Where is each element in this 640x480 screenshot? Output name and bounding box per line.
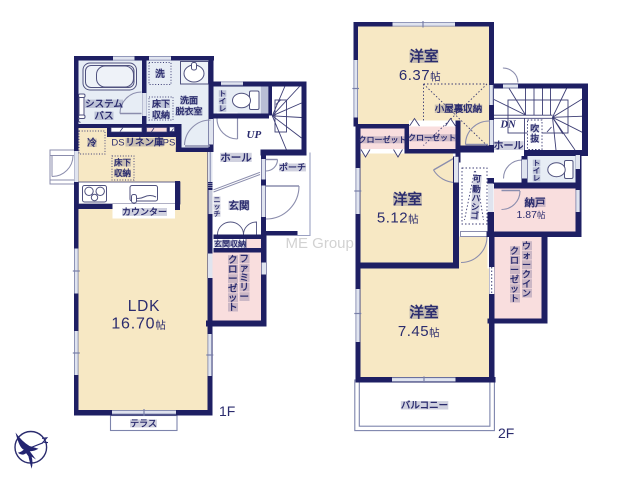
svg-text:クローゼット: クローゼット: [408, 133, 456, 143]
svg-text:ゴ: ゴ: [470, 210, 480, 221]
svg-text:ー: ー: [522, 260, 531, 270]
svg-text:吹: 吹: [530, 123, 540, 134]
svg-text:ー: ー: [240, 292, 250, 303]
svg-text:2F: 2F: [498, 425, 514, 441]
svg-text:レ: レ: [533, 174, 541, 183]
svg-text:LDK: LDK: [128, 298, 161, 315]
svg-text:イ: イ: [522, 279, 531, 289]
svg-text:ポーチ: ポーチ: [279, 162, 306, 173]
svg-text:洋室: 洋室: [393, 191, 422, 209]
svg-text:収納: 収納: [152, 109, 170, 120]
svg-text:クローゼット: クローゼット: [359, 135, 407, 145]
svg-text:洗: 洗: [155, 68, 165, 80]
svg-text:ン: ン: [522, 289, 531, 299]
svg-text:洋室: 洋室: [410, 304, 439, 322]
svg-text:ォ: ォ: [522, 251, 531, 261]
svg-text:ク: ク: [510, 246, 519, 256]
svg-text:ゼ: ゼ: [510, 274, 519, 285]
svg-text:ッ: ッ: [510, 284, 519, 294]
svg-text:レ: レ: [219, 104, 227, 113]
svg-text:ME Group: ME Group: [286, 235, 354, 252]
svg-text:DN: DN: [500, 120, 517, 131]
svg-text:システム: システム: [85, 99, 123, 110]
svg-text:納戸: 納戸: [525, 196, 546, 209]
svg-text:床下: 床下: [114, 158, 132, 168]
svg-text:小屋裏収納: 小屋裏収納: [434, 103, 483, 115]
svg-text:バルコニー: バルコニー: [401, 400, 448, 412]
svg-text:ト: ト: [228, 303, 238, 314]
svg-text:1.87帖: 1.87帖: [517, 209, 546, 221]
svg-text:ウ: ウ: [522, 241, 531, 251]
svg-text:玄関収納: 玄関収納: [214, 239, 246, 249]
svg-text:1F: 1F: [219, 403, 235, 419]
svg-text:玄関: 玄関: [229, 199, 250, 212]
svg-text:ー: ー: [510, 265, 519, 275]
svg-text:テラス: テラス: [130, 419, 157, 429]
svg-text:収納: 収納: [114, 168, 131, 178]
svg-text:ク: ク: [522, 270, 531, 280]
svg-text:ト: ト: [510, 294, 519, 304]
svg-text:ロ: ロ: [510, 256, 519, 266]
svg-text:UP: UP: [247, 129, 262, 141]
svg-text:洋室: 洋室: [410, 48, 439, 66]
svg-text:PS: PS: [163, 138, 176, 149]
svg-text:洗面: 洗面: [180, 95, 198, 106]
svg-text:ホール: ホール: [494, 140, 524, 152]
svg-text:バス: バス: [94, 110, 113, 122]
svg-text:DS: DS: [111, 138, 124, 149]
svg-text:チ: チ: [214, 210, 221, 218]
svg-text:ホール: ホール: [220, 152, 252, 164]
svg-text:カウンター: カウンター: [122, 206, 167, 217]
svg-text:抜: 抜: [530, 133, 540, 144]
svg-text:ッ: ッ: [214, 204, 221, 211]
svg-text:可: 可: [473, 173, 483, 184]
svg-text:ニ: ニ: [214, 197, 221, 204]
svg-text:冷: 冷: [87, 137, 97, 149]
svg-text:床下: 床下: [152, 98, 170, 109]
svg-text:リネン庫: リネン庫: [125, 137, 164, 149]
svg-text:脱衣室: 脱衣室: [175, 106, 202, 117]
